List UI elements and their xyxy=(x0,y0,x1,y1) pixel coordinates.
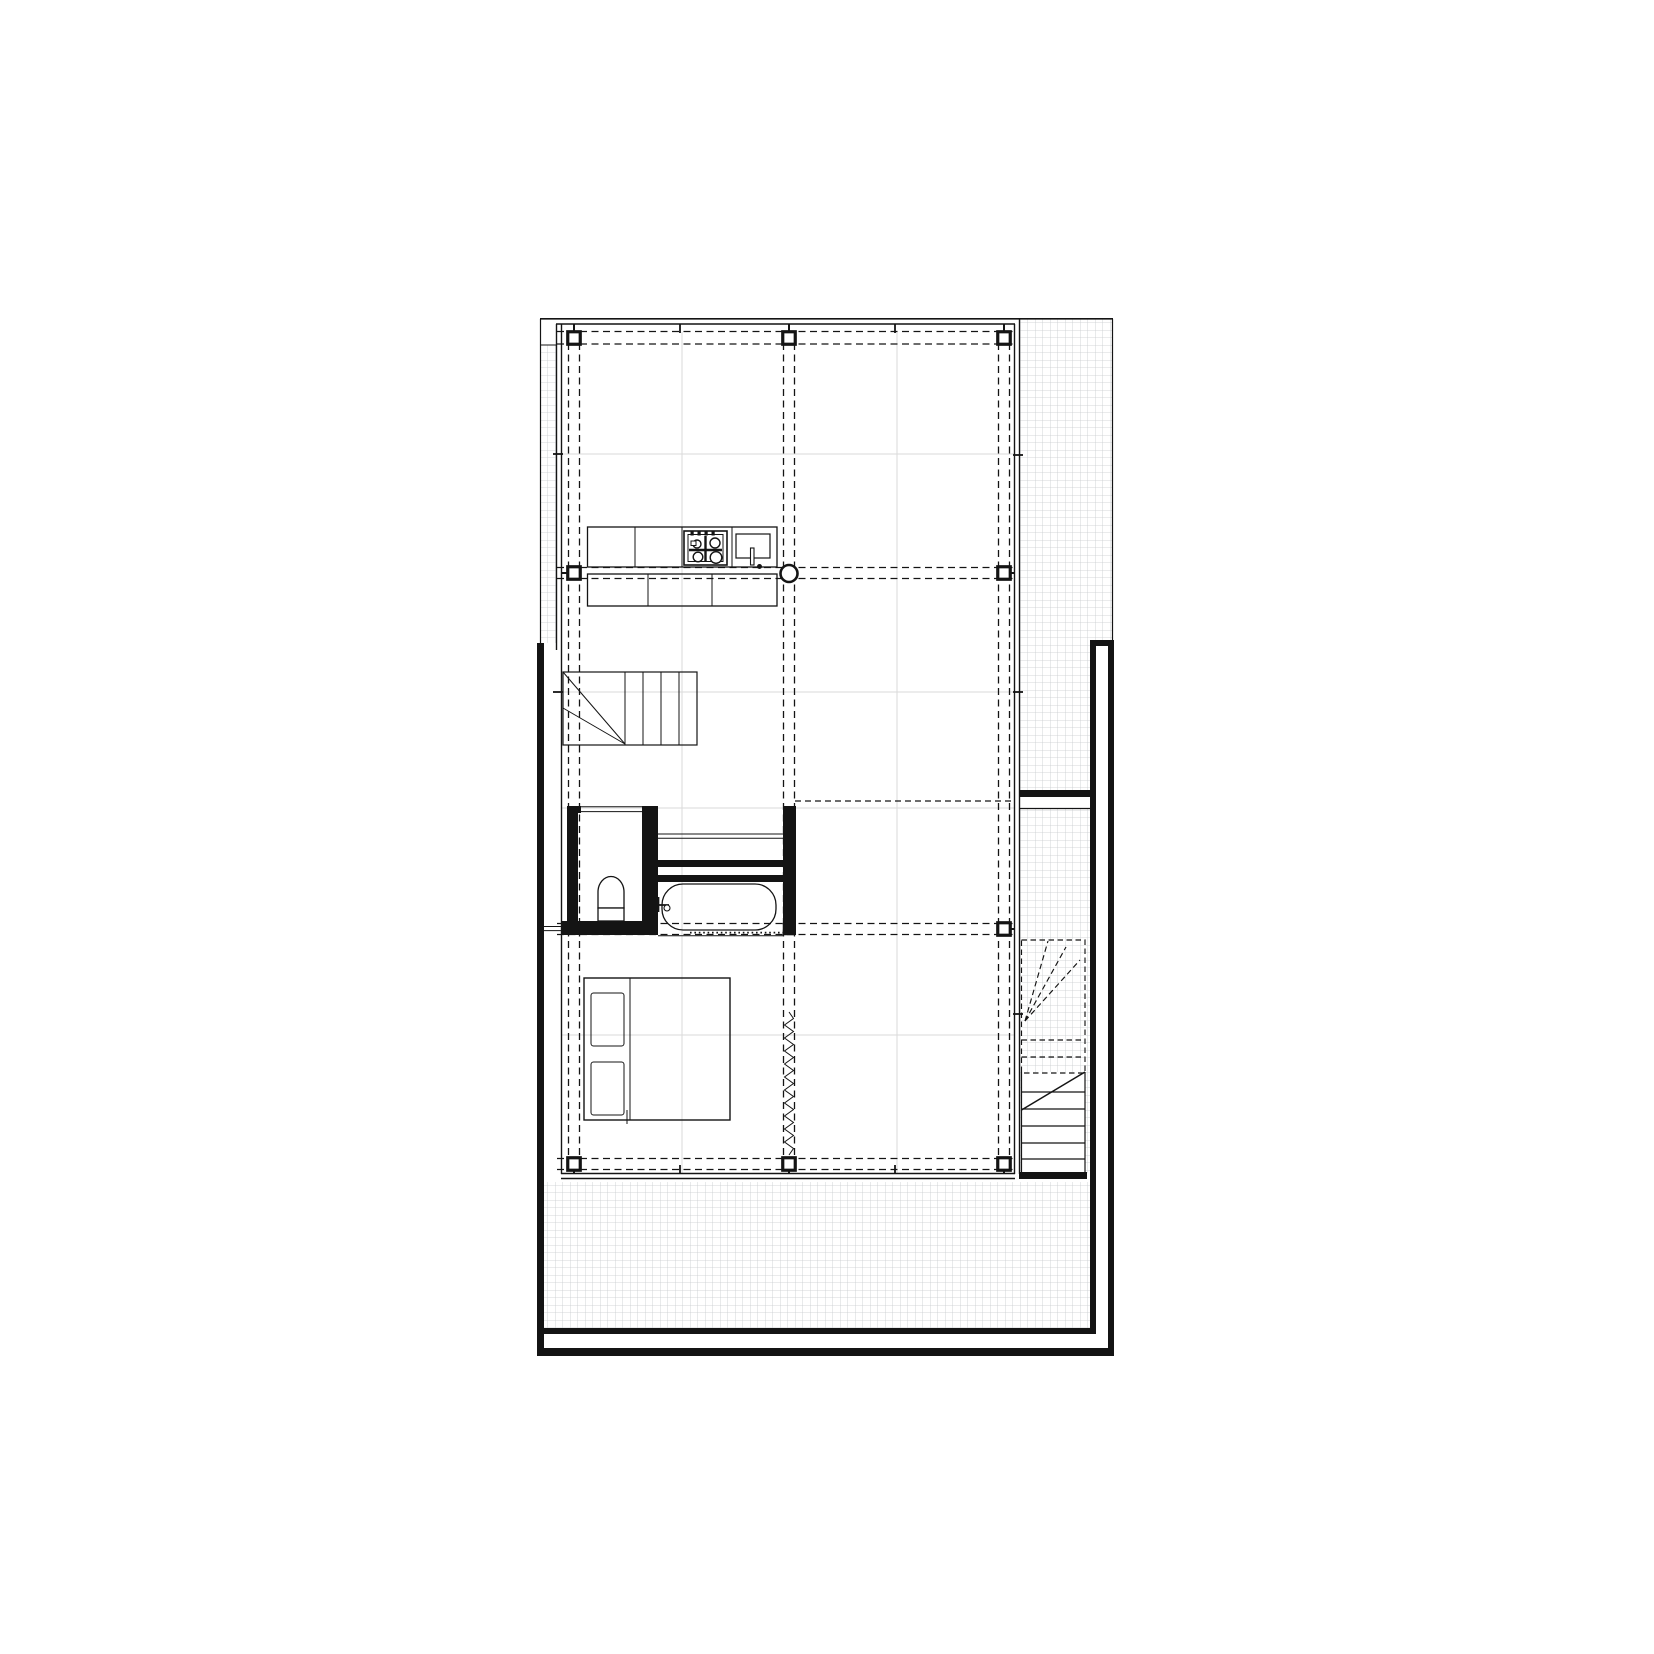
column xyxy=(998,567,1011,580)
mullion-ticks xyxy=(553,324,1023,1174)
winder-stair-interior xyxy=(563,672,697,745)
wall-left xyxy=(537,643,544,1356)
structural-columns xyxy=(568,332,1011,1171)
wall-bottom-inner xyxy=(544,1328,1096,1334)
column xyxy=(783,1158,796,1171)
cooktop-4-burner xyxy=(684,531,727,565)
structural-grid-axes xyxy=(557,332,1014,1171)
wall-right-inner xyxy=(1090,640,1096,1334)
wall-right-cap xyxy=(1090,640,1114,646)
bathroom xyxy=(544,806,796,936)
floor-plan-canvas xyxy=(0,0,1654,1654)
bath-wall-bottom xyxy=(561,921,658,935)
pillow xyxy=(591,993,624,1046)
terrace-top-right xyxy=(1020,319,1113,643)
floor-plan-page xyxy=(0,0,1654,1654)
column xyxy=(998,332,1011,345)
bath-wall-right xyxy=(783,806,796,935)
terrace-step-edge xyxy=(1020,790,1090,797)
curtain-line xyxy=(785,1012,794,1155)
terrace-strip-left xyxy=(541,345,557,643)
wc-toilet xyxy=(598,877,624,922)
column xyxy=(568,1158,581,1171)
bedroom xyxy=(584,978,794,1155)
bath-wall-left xyxy=(567,806,578,935)
bath-wall-middle xyxy=(642,806,658,935)
round-column xyxy=(781,565,798,582)
column xyxy=(998,1158,1011,1171)
column xyxy=(998,923,1011,936)
terrace-strip-right-upper xyxy=(1020,643,1090,790)
column xyxy=(568,332,581,345)
column xyxy=(568,567,581,580)
wall-bottom-outer xyxy=(537,1348,1114,1356)
glazed-facades xyxy=(553,319,1023,1179)
column xyxy=(783,923,796,936)
double-bed xyxy=(584,978,730,1120)
wall-right-outer xyxy=(1108,640,1114,1356)
column xyxy=(783,332,796,345)
pillow xyxy=(591,1062,624,1115)
terrace-bottom xyxy=(544,1182,1090,1328)
kitchen-sink xyxy=(736,534,770,569)
